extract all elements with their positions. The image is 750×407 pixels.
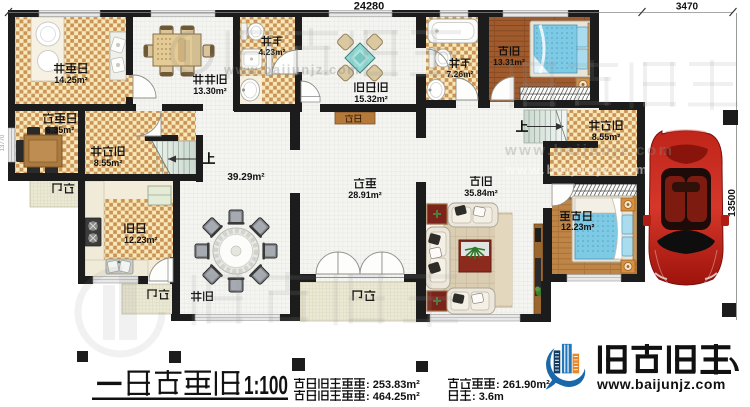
svg-text:1:100: 1:100 — [244, 370, 288, 400]
svg-text:13.31m²: 13.31m² — [493, 57, 525, 67]
svg-text:28.91m²: 28.91m² — [348, 190, 382, 200]
svg-text:13.30m²: 13.30m² — [193, 86, 227, 96]
svg-text:: 261.90m²: : 261.90m² — [496, 379, 550, 391]
svg-text:15.32m²: 15.32m² — [354, 94, 388, 104]
svg-text:24280: 24280 — [354, 1, 385, 13]
svg-text:www.baijunjz.com: www.baijunjz.com — [596, 376, 726, 392]
svg-text:13770: 13770 — [0, 134, 6, 151]
svg-text:8.55m²: 8.55m² — [592, 132, 621, 142]
svg-text:12.23m²: 12.23m² — [561, 222, 595, 232]
svg-text:12.23m²: 12.23m² — [124, 235, 158, 245]
svg-text:35.84m²: 35.84m² — [464, 188, 498, 198]
svg-text:www.baijunjz.com: www.baijunjz.com — [504, 142, 674, 159]
svg-text:www.baijunjz.com: www.baijunjz.com — [223, 62, 360, 77]
svg-text:8.55m²: 8.55m² — [94, 158, 123, 168]
svg-text:39.29m²: 39.29m² — [227, 172, 265, 183]
svg-text:14.25m²: 14.25m² — [54, 75, 88, 85]
svg-text:3470: 3470 — [676, 2, 699, 13]
svg-text:: 464.25m²: : 464.25m² — [366, 391, 420, 403]
svg-text:6.35m²: 6.35m² — [46, 125, 75, 135]
svg-text:: 3.6m: : 3.6m — [472, 391, 504, 403]
svg-text:: 253.83m²: : 253.83m² — [366, 379, 420, 391]
svg-text:www.baijunjz.com: www.baijunjz.com — [504, 162, 649, 177]
